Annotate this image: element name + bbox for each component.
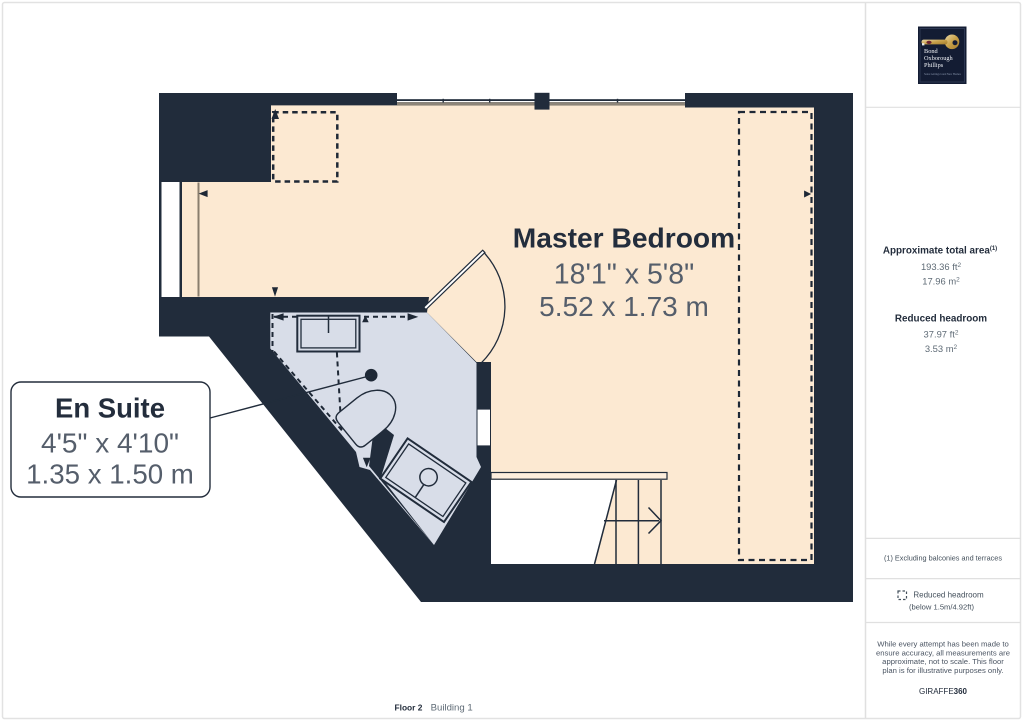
svg-text:Approximate total area(1): Approximate total area(1)	[883, 246, 997, 257]
svg-text:Floor 2: Floor 2	[395, 703, 423, 713]
svg-text:4'5" x 4'10": 4'5" x 4'10"	[41, 428, 179, 459]
svg-text:37.97 ft2: 37.97 ft2	[924, 329, 959, 340]
svg-text:3.53 m2: 3.53 m2	[925, 343, 958, 354]
svg-text:ensure accuracy, all measureme: ensure accuracy, all measurements are	[876, 648, 1010, 657]
svg-text:Reduced headroom: Reduced headroom	[913, 591, 984, 600]
svg-text:While every attempt has been m: While every attempt has been made to	[877, 640, 1009, 649]
svg-text:193.36 ft2: 193.36 ft2	[921, 261, 962, 272]
svg-text:1.35 x 1.50 m: 1.35 x 1.50 m	[26, 459, 194, 490]
svg-text:Master Bedroom: Master Bedroom	[513, 222, 735, 254]
svg-text:17.96 m2: 17.96 m2	[922, 276, 960, 287]
svg-text:Building 1: Building 1	[431, 703, 473, 714]
svg-text:(below 1.5m/4.92ft): (below 1.5m/4.92ft)	[909, 603, 974, 612]
svg-text:5.52 x 1.73 m: 5.52 x 1.73 m	[539, 291, 709, 322]
svg-text:GIRAFFE360: GIRAFFE360	[919, 687, 968, 696]
svg-text:(1) Excluding balconies and te: (1) Excluding balconies and terraces	[884, 554, 1002, 563]
svg-text:plan is for illustrative purpo: plan is for illustrative purposes only.	[882, 666, 1003, 675]
svg-text:Sales Lettings Land New Hom: Sales Lettings Land New Homes	[924, 73, 961, 76]
svg-text:18'1" x 5'8": 18'1" x 5'8"	[554, 259, 694, 291]
svg-text:Reduced headroom: Reduced headroom	[895, 314, 987, 325]
svg-text:Phillips: Phillips	[924, 62, 944, 69]
svg-text:En Suite: En Suite	[55, 393, 165, 424]
svg-text:Oxborough: Oxborough	[924, 55, 954, 62]
svg-text:approximate, not to scale. Thi: approximate, not to scale. This floor	[882, 657, 1004, 666]
